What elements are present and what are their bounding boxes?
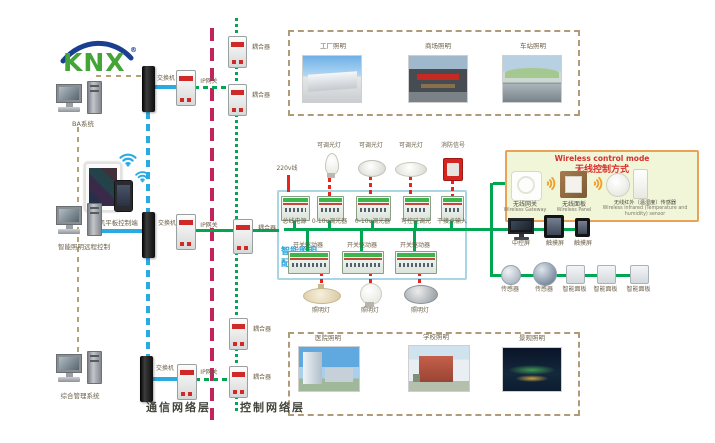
coupler-label: 耦合器 [254,226,280,233]
switch-label: 交换机 [154,76,178,83]
coupler-device [228,36,247,68]
driver-label: 开关驱动器 [288,243,328,250]
dimmable-lamp-line [369,176,372,197]
coupler-device [229,366,248,398]
switch3-gateway-link [153,377,178,381]
photo-mall-lighting [408,55,468,103]
sensor-device [501,265,521,285]
module-label: 可控硅调光 [396,219,436,226]
monitor [56,354,82,373]
smart-panel-label: 智能面板 [558,287,591,294]
coupler-device [228,84,247,116]
registered-mark: ® [130,46,137,54]
wireless-panel-device [560,171,587,198]
gateway1-coupler-link [194,86,229,89]
control-layer-label: 控制网络层 [240,399,305,415]
coupler-label: 耦合器 [249,375,275,382]
gallery-label: 商场照明 [422,43,454,50]
pc-tower [87,351,102,384]
phone-device [114,180,133,212]
knx-wordmark: KNX [63,48,126,77]
driver-label: 开关驱动器 [342,243,382,250]
fire-signal-label: 消防信号 [436,143,470,150]
central-screen-label: 中控屏 [506,241,536,248]
ba-system-label: BA系统 [60,121,106,128]
switch-driver-module [288,251,330,274]
module-label: 0-10v调光器 [308,219,351,226]
ceiling-lamp-icon [395,162,427,177]
touch-screen-device [575,218,590,237]
switch1-gateway-link [155,85,177,89]
remote-control-label: 智能照明远程控制 [52,244,116,251]
power-220v-label: 220v线 [272,166,302,173]
monitor [56,206,82,225]
candle-lamp-icon [322,153,342,179]
sensor-device [533,262,557,286]
management-computer [56,354,102,386]
wireless-sensor-label: 无线红外（温湿度）传感器 Wireless infrared (Temperat… [598,200,692,218]
knx-bus-segment [235,114,238,219]
knx-logo: KNX ® [58,36,138,82]
lamp-label: 照明灯 [402,308,438,315]
power-220v-line [287,175,290,192]
monitor [56,84,82,103]
dimmable-lamp-label: 可调光灯 [311,143,347,150]
central-screen-device [508,218,534,240]
photo-station-lighting [502,55,562,103]
management-label: 综合管理系统 [56,393,104,400]
knx-bus-segment [235,396,238,412]
switch-driver-module [395,251,437,274]
coupler-label: 耦合器 [248,93,274,100]
lamp-label: 照明灯 [352,308,388,315]
saucer-lamp-icon [303,284,339,304]
switch-device [140,356,153,402]
driver-label: 开关驱动器 [395,243,435,250]
ip-gateway-label: IP网关 [195,223,223,230]
gallery-label: 工厂照明 [317,43,349,50]
dimmable-lamp-line [328,178,331,197]
pc-tower [87,81,102,114]
wireless-panel-label: 无线面板 Wireless Panel [551,201,597,214]
pc-tower [87,203,102,236]
wireless-gateway-zh: 无线网关 [513,201,537,208]
touch-screen-label: 触摸屏 [570,241,596,248]
photo-factory-lighting [302,55,362,103]
fire-alarm-icon [443,158,463,181]
wireless-feed-line [493,182,505,185]
switch-driver-module [342,251,384,274]
photo-landscape-lighting [502,347,562,392]
gallery-label: 景观照明 [516,335,548,342]
row2-link [519,274,534,277]
dish-lamp-icon [404,285,438,304]
dimmable-lamp-label: 可调光灯 [392,143,430,150]
driver-lamp-line [418,272,421,286]
ip-gateway-device [177,364,197,400]
wireless-panel-zh: 无线面板 [562,201,586,208]
wifi-icon [134,168,151,183]
wireless-gateway-device [511,171,542,201]
knx-lighting-topology-diagram: 工厂照明 商场照明 车站照明 医院照明 学校照明 景观照明 智能照明 配电箱 W… [0,0,715,443]
ip-gateway-label: IP网关 [195,370,223,377]
wireless-sensor-round-device [606,173,630,197]
smart-panel-device [566,265,585,284]
gallery-label: 学校照明 [420,334,452,341]
comm-layer-label: 通信网络层 [146,399,211,415]
coupler-label: 耦合器 [249,327,275,334]
switch-device [142,66,155,112]
row2-link [583,274,598,277]
bulb-lamp-icon [360,283,380,308]
gallery-label: 车站照明 [517,43,549,50]
coupler-device [229,318,248,350]
switch-label: 交换机 [153,366,177,373]
cabinet-bus-line [284,228,492,231]
wireless-gateway-label: 无线网关 Wireless Gateway [498,201,552,214]
smart-panel-device [630,265,649,284]
sensor-label: 传感器 [530,287,558,294]
knx-bus-segment [235,252,238,318]
wireless-sensor-en: Wireless infrared (Temperature and humid… [598,206,692,218]
dimmable-lamp-line [409,176,412,197]
coupler-label: 耦合器 [248,45,274,52]
wireless-gateway-en: Wireless Gateway [498,208,552,214]
wireless-signal-icon [592,176,605,191]
ip-gateway-label: IP网关 [195,79,223,86]
knx-bus-segment [235,66,238,84]
wireless-signal-icon [545,176,558,191]
touch-screen-label: 触摸屏 [542,241,568,248]
switch-backbone-lower [146,258,150,356]
lamp-label: 照明灯 [303,308,339,315]
ba-system-computer [56,84,102,116]
ip-gateway-device [176,214,196,250]
sensor-label: 传感器 [496,287,524,294]
ip-gateway-device [176,70,196,106]
left-column-link [77,127,79,355]
photo-hospital-lighting [298,346,360,392]
gallery-label: 医院照明 [312,335,344,342]
smart-panel-label: 智能面板 [622,287,655,294]
wireless-sensor-rect-device [633,169,648,199]
remote-control-computer [56,206,102,238]
fire-signal-line [451,180,454,197]
dimmable-lamp-label: 可调光灯 [353,143,389,150]
switch-device [142,212,155,258]
knx-bus-segment [235,348,238,366]
smart-panel-label: 智能面板 [589,287,622,294]
wireless-panel-en: Wireless Panel [551,208,597,214]
module-label: 0-10v调光器 [349,219,396,226]
coupler-device [233,219,253,254]
downlight-icon [358,160,386,177]
row2-link [614,274,631,277]
module-label: 干接点输入 [434,219,470,226]
pc2-switch-link [100,229,144,233]
gateway3-coupler-link [195,378,230,381]
knx-bus-segment [235,18,238,36]
photo-school-lighting [408,345,470,392]
smart-panel-device [597,265,616,284]
touch-screen-device [544,215,564,238]
